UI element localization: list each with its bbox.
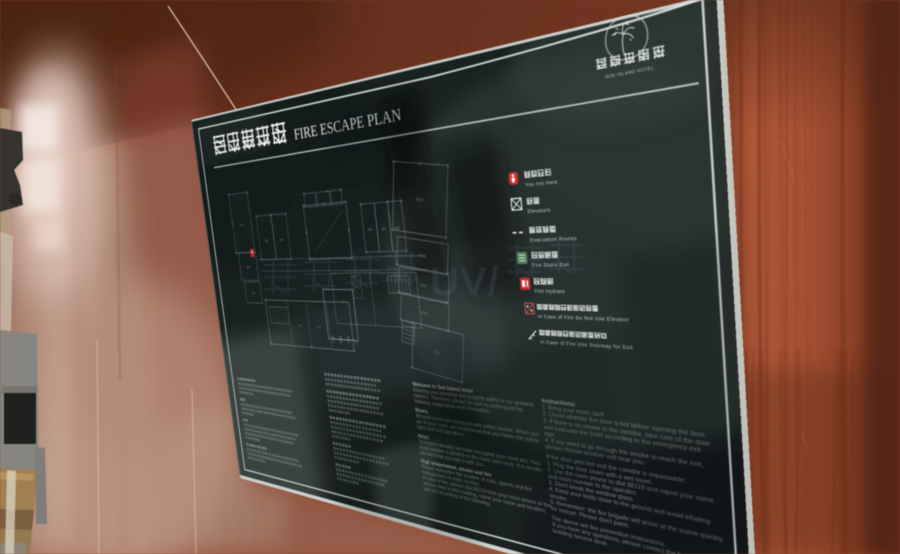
svg-text:UV/: UV/ (430, 260, 500, 304)
